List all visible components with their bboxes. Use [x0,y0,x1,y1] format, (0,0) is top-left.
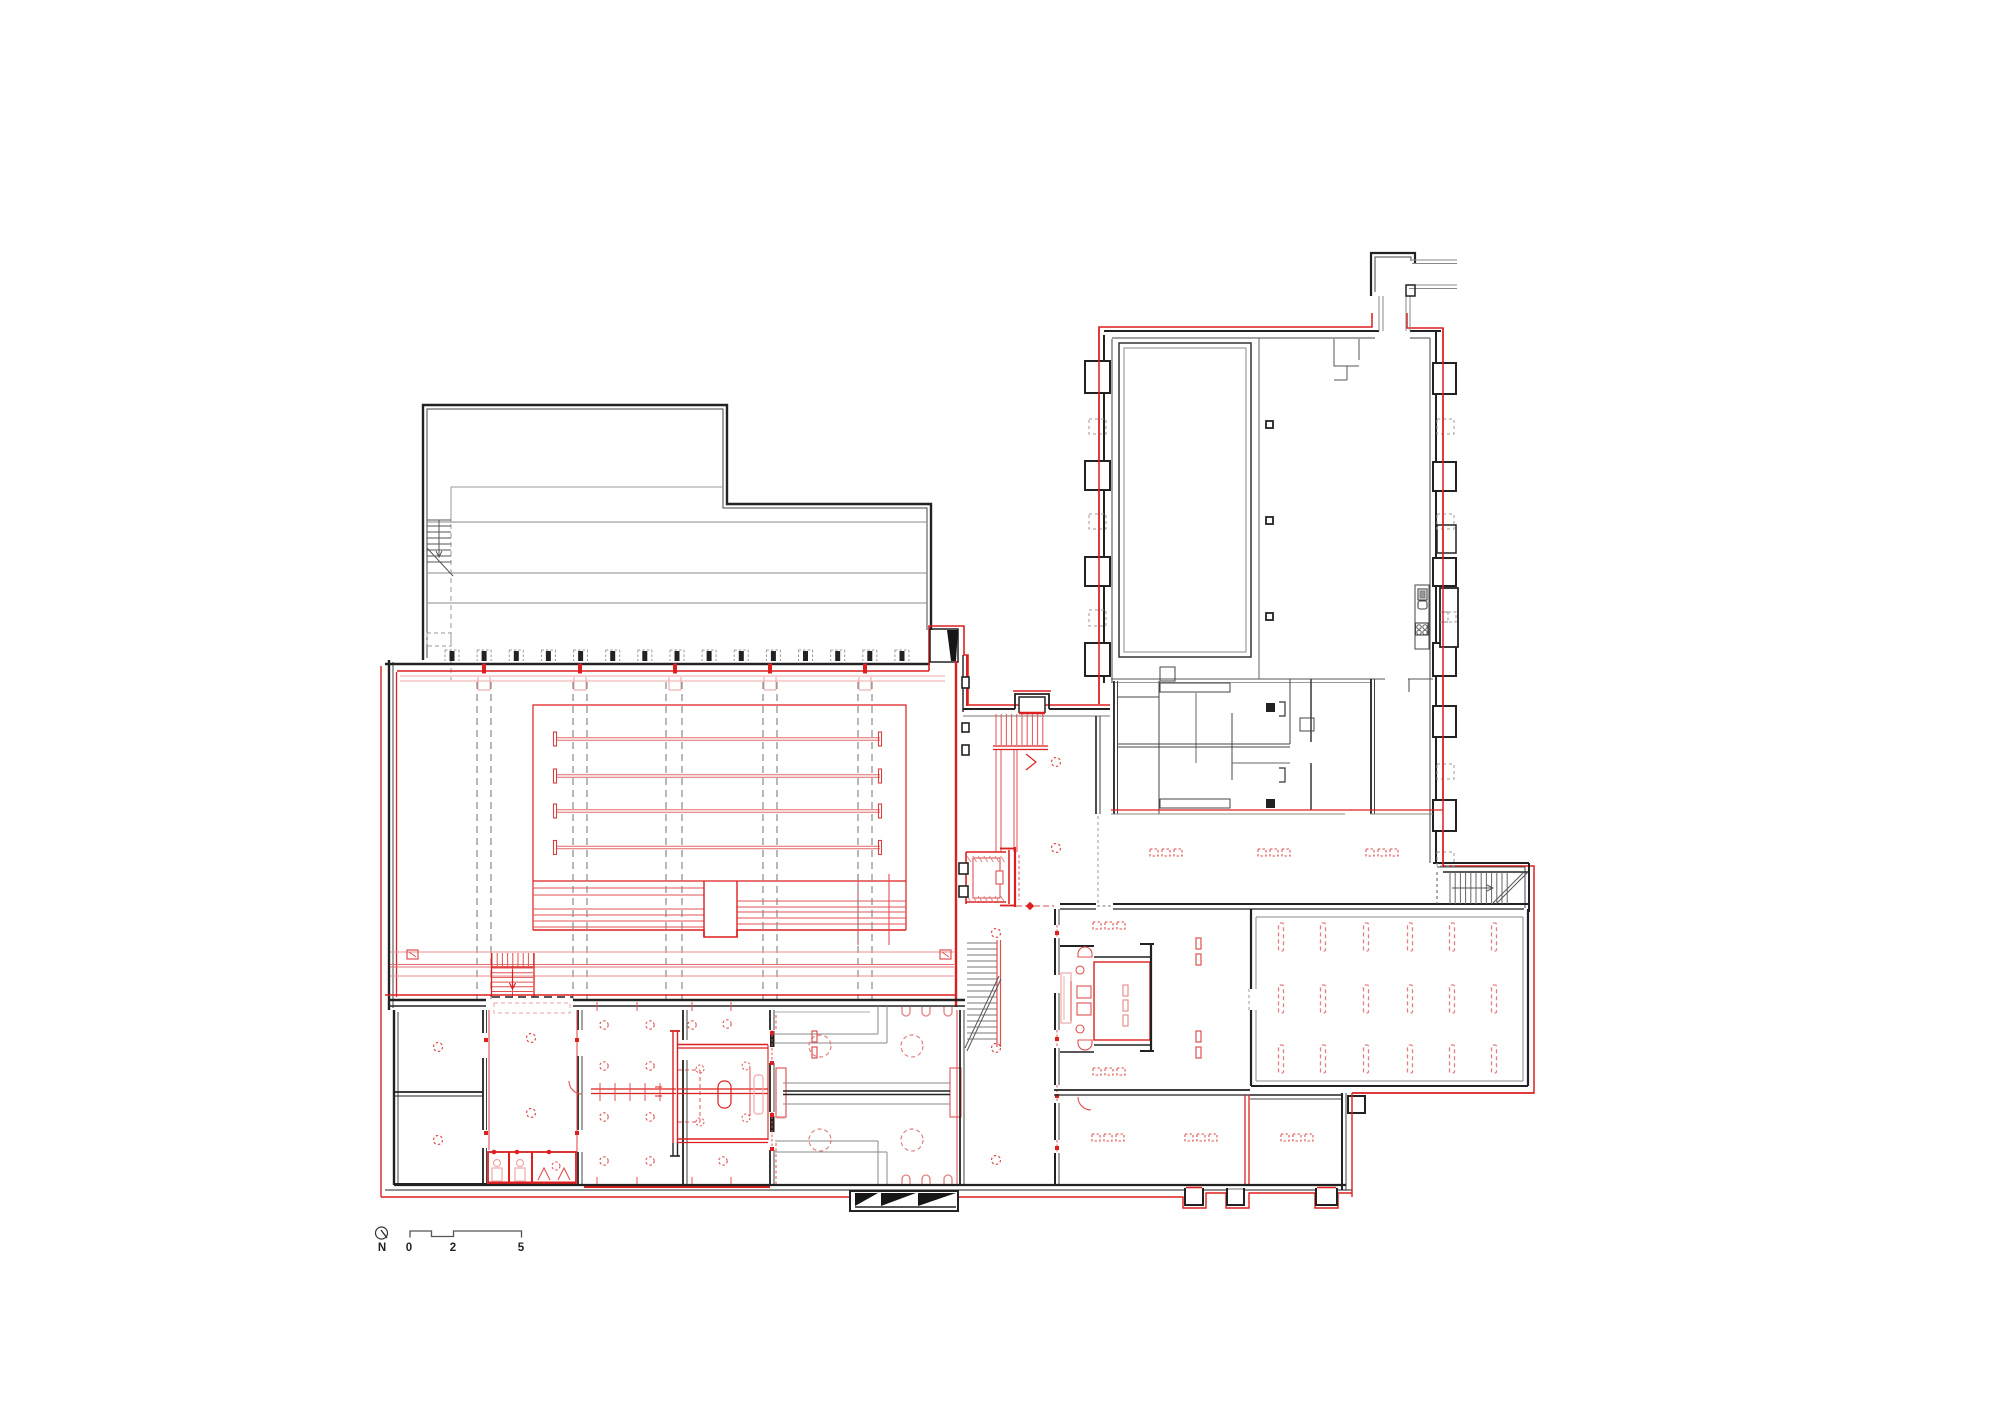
svg-text:N: N [378,1242,386,1254]
svg-text:2: 2 [450,1242,456,1254]
svg-text:0: 0 [406,1242,412,1254]
svg-text:5: 5 [518,1242,525,1254]
